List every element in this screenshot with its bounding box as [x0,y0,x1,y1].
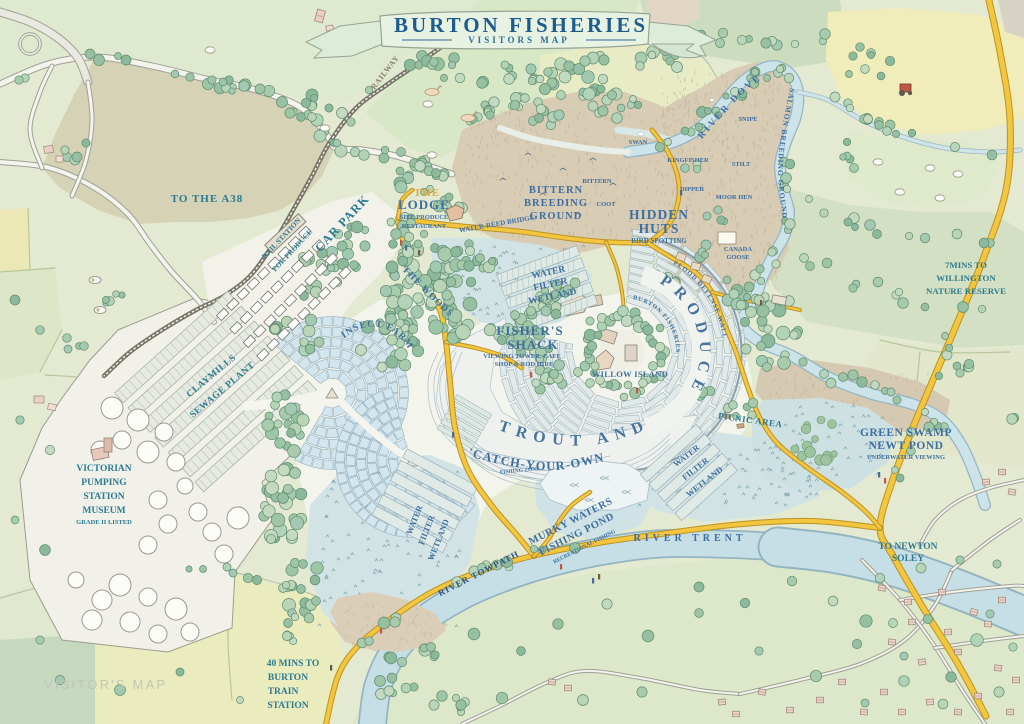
svg-text:NATURE RESERVE: NATURE RESERVE [926,286,1006,296]
svg-text:PUMPING: PUMPING [81,478,127,488]
svg-text:BITTERN: BITTERN [529,185,583,196]
svg-text:SNIPE: SNIPE [738,116,757,123]
svg-text:SOLEY: SOLEY [892,554,924,564]
svg-text:RIVER TRENT: RIVER TRENT [634,533,747,544]
svg-text:FISHER'S: FISHER'S [496,323,563,338]
svg-text:NEWT POND: NEWT POND [869,440,944,452]
svg-text:HUTS: HUTS [639,221,680,236]
svg-text:KINGFISHER: KINGFISHER [667,157,709,164]
svg-text:SITE PRODUCE: SITE PRODUCE [400,214,449,221]
svg-text:BREEDING: BREEDING [524,198,588,209]
svg-text:BURTON FISHERIES: BURTON FISHERIES [394,13,648,37]
svg-text:HIDDEN: HIDDEN [629,207,689,222]
svg-text:7MINS TO: 7MINS TO [945,260,987,270]
svg-text:MUSEUM: MUSEUM [82,506,125,516]
svg-text:STILT: STILT [732,161,751,168]
svg-text:GRADE II LISTED: GRADE II LISTED [76,519,132,526]
svg-text:VIEWING TOWER, CAFE: VIEWING TOWER, CAFE [483,353,561,360]
svg-text:GROUND: GROUND [530,211,583,222]
svg-text:VISITOR'S MAP: VISITOR'S MAP [44,677,167,692]
svg-text:VICTORIAN: VICTORIAN [76,464,131,474]
svg-text:DIPPER: DIPPER [680,186,705,193]
svg-text:STATION: STATION [267,701,308,711]
svg-text:COOT: COOT [596,201,616,208]
svg-text:WILLINGTON: WILLINGTON [936,273,996,283]
svg-text:TRAIN: TRAIN [268,687,299,697]
svg-text:CANADA: CANADA [724,246,752,253]
svg-text:BIRD SPOTTING: BIRD SPOTTING [631,237,687,245]
svg-text:SHOP & ROD HIRE: SHOP & ROD HIRE [495,361,554,368]
svg-text:40 MINS TO: 40 MINS TO [267,659,319,669]
svg-text:TO NEWTON: TO NEWTON [878,542,937,552]
svg-text:TO THE A38: TO THE A38 [171,193,244,205]
svg-text:LODGE: LODGE [398,197,450,212]
svg-text:STATION: STATION [83,492,124,502]
svg-text:WILLOW ISLAND: WILLOW ISLAND [592,369,668,379]
svg-text:SWAN: SWAN [629,139,648,146]
svg-text:BITTERN: BITTERN [582,178,612,185]
svg-text:SHACK: SHACK [507,337,558,352]
svg-text:UNDERWATER VIEWING: UNDERWATER VIEWING [867,454,945,461]
svg-text:VISITORS MAP: VISITORS MAP [468,35,570,45]
svg-text:GOOSE: GOOSE [726,254,749,261]
svg-text:RESTAURANT: RESTAURANT [402,223,447,230]
svg-text:MOOR HEN: MOOR HEN [716,194,753,201]
svg-text:BURTON: BURTON [268,673,308,683]
svg-text:GREEN SWAMP: GREEN SWAMP [860,427,952,439]
